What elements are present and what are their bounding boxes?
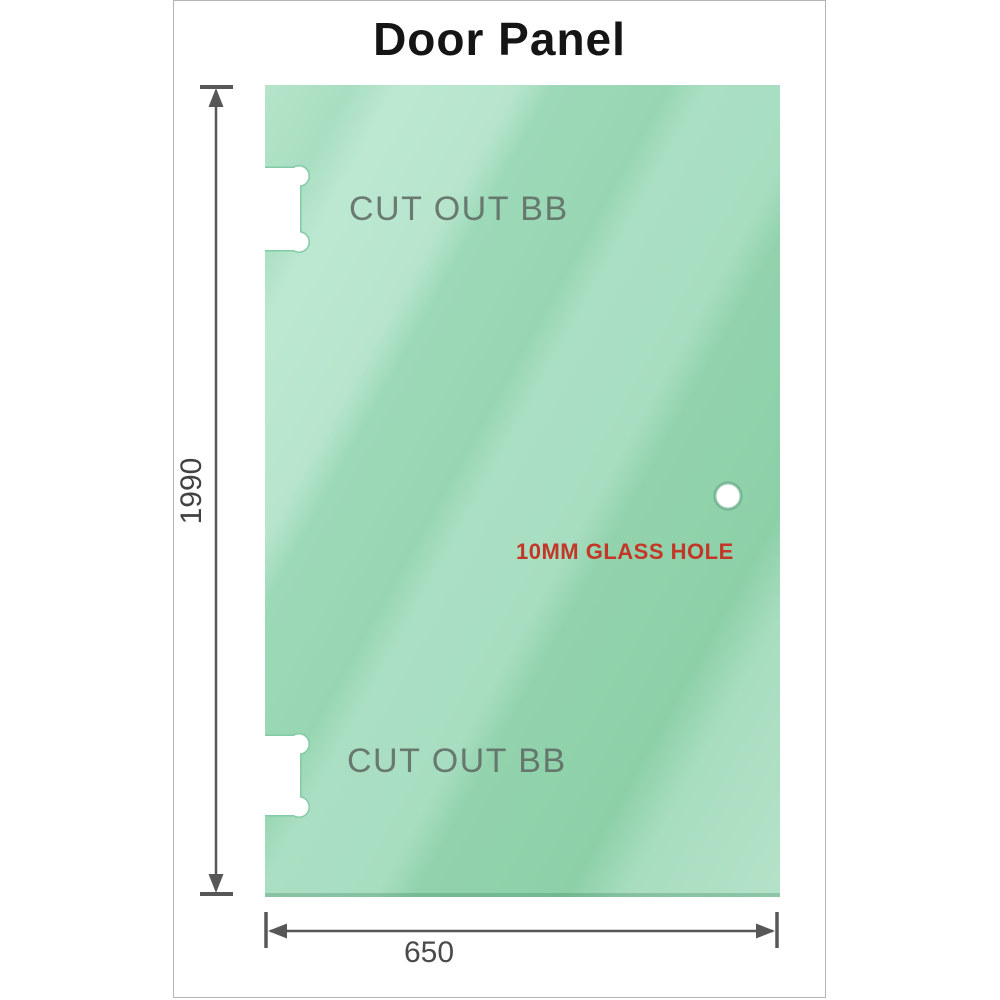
cutout-bb-bottom-label: CUT OUT BB	[347, 742, 567, 781]
cutout-bb-top-label: CUT OUT BB	[349, 190, 569, 229]
diagram-title: Door Panel	[173, 12, 826, 66]
glass-hole-label: 10MM GLASS HOLE	[516, 539, 734, 565]
height-dimension-label: 1990	[175, 431, 209, 551]
door-panel-diagram: Door Panel	[0, 0, 1000, 1000]
width-dimension-label: 650	[379, 936, 479, 970]
